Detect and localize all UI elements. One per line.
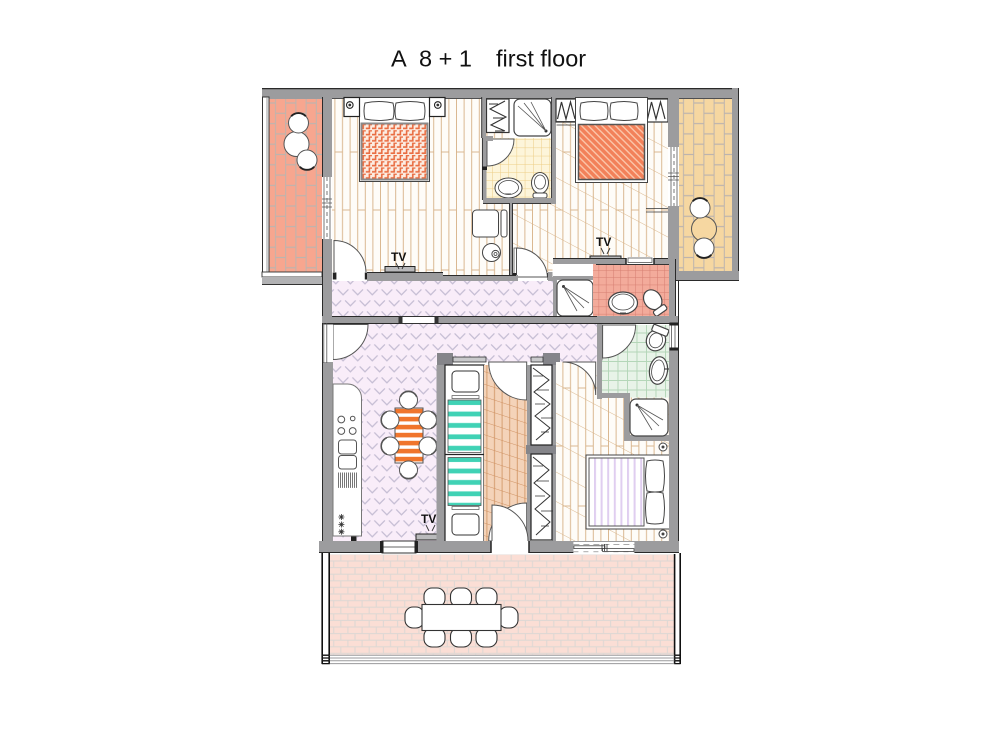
svg-text:TV: TV: [421, 512, 436, 526]
svg-text:TV: TV: [391, 250, 406, 264]
svg-text:TV: TV: [596, 235, 611, 249]
